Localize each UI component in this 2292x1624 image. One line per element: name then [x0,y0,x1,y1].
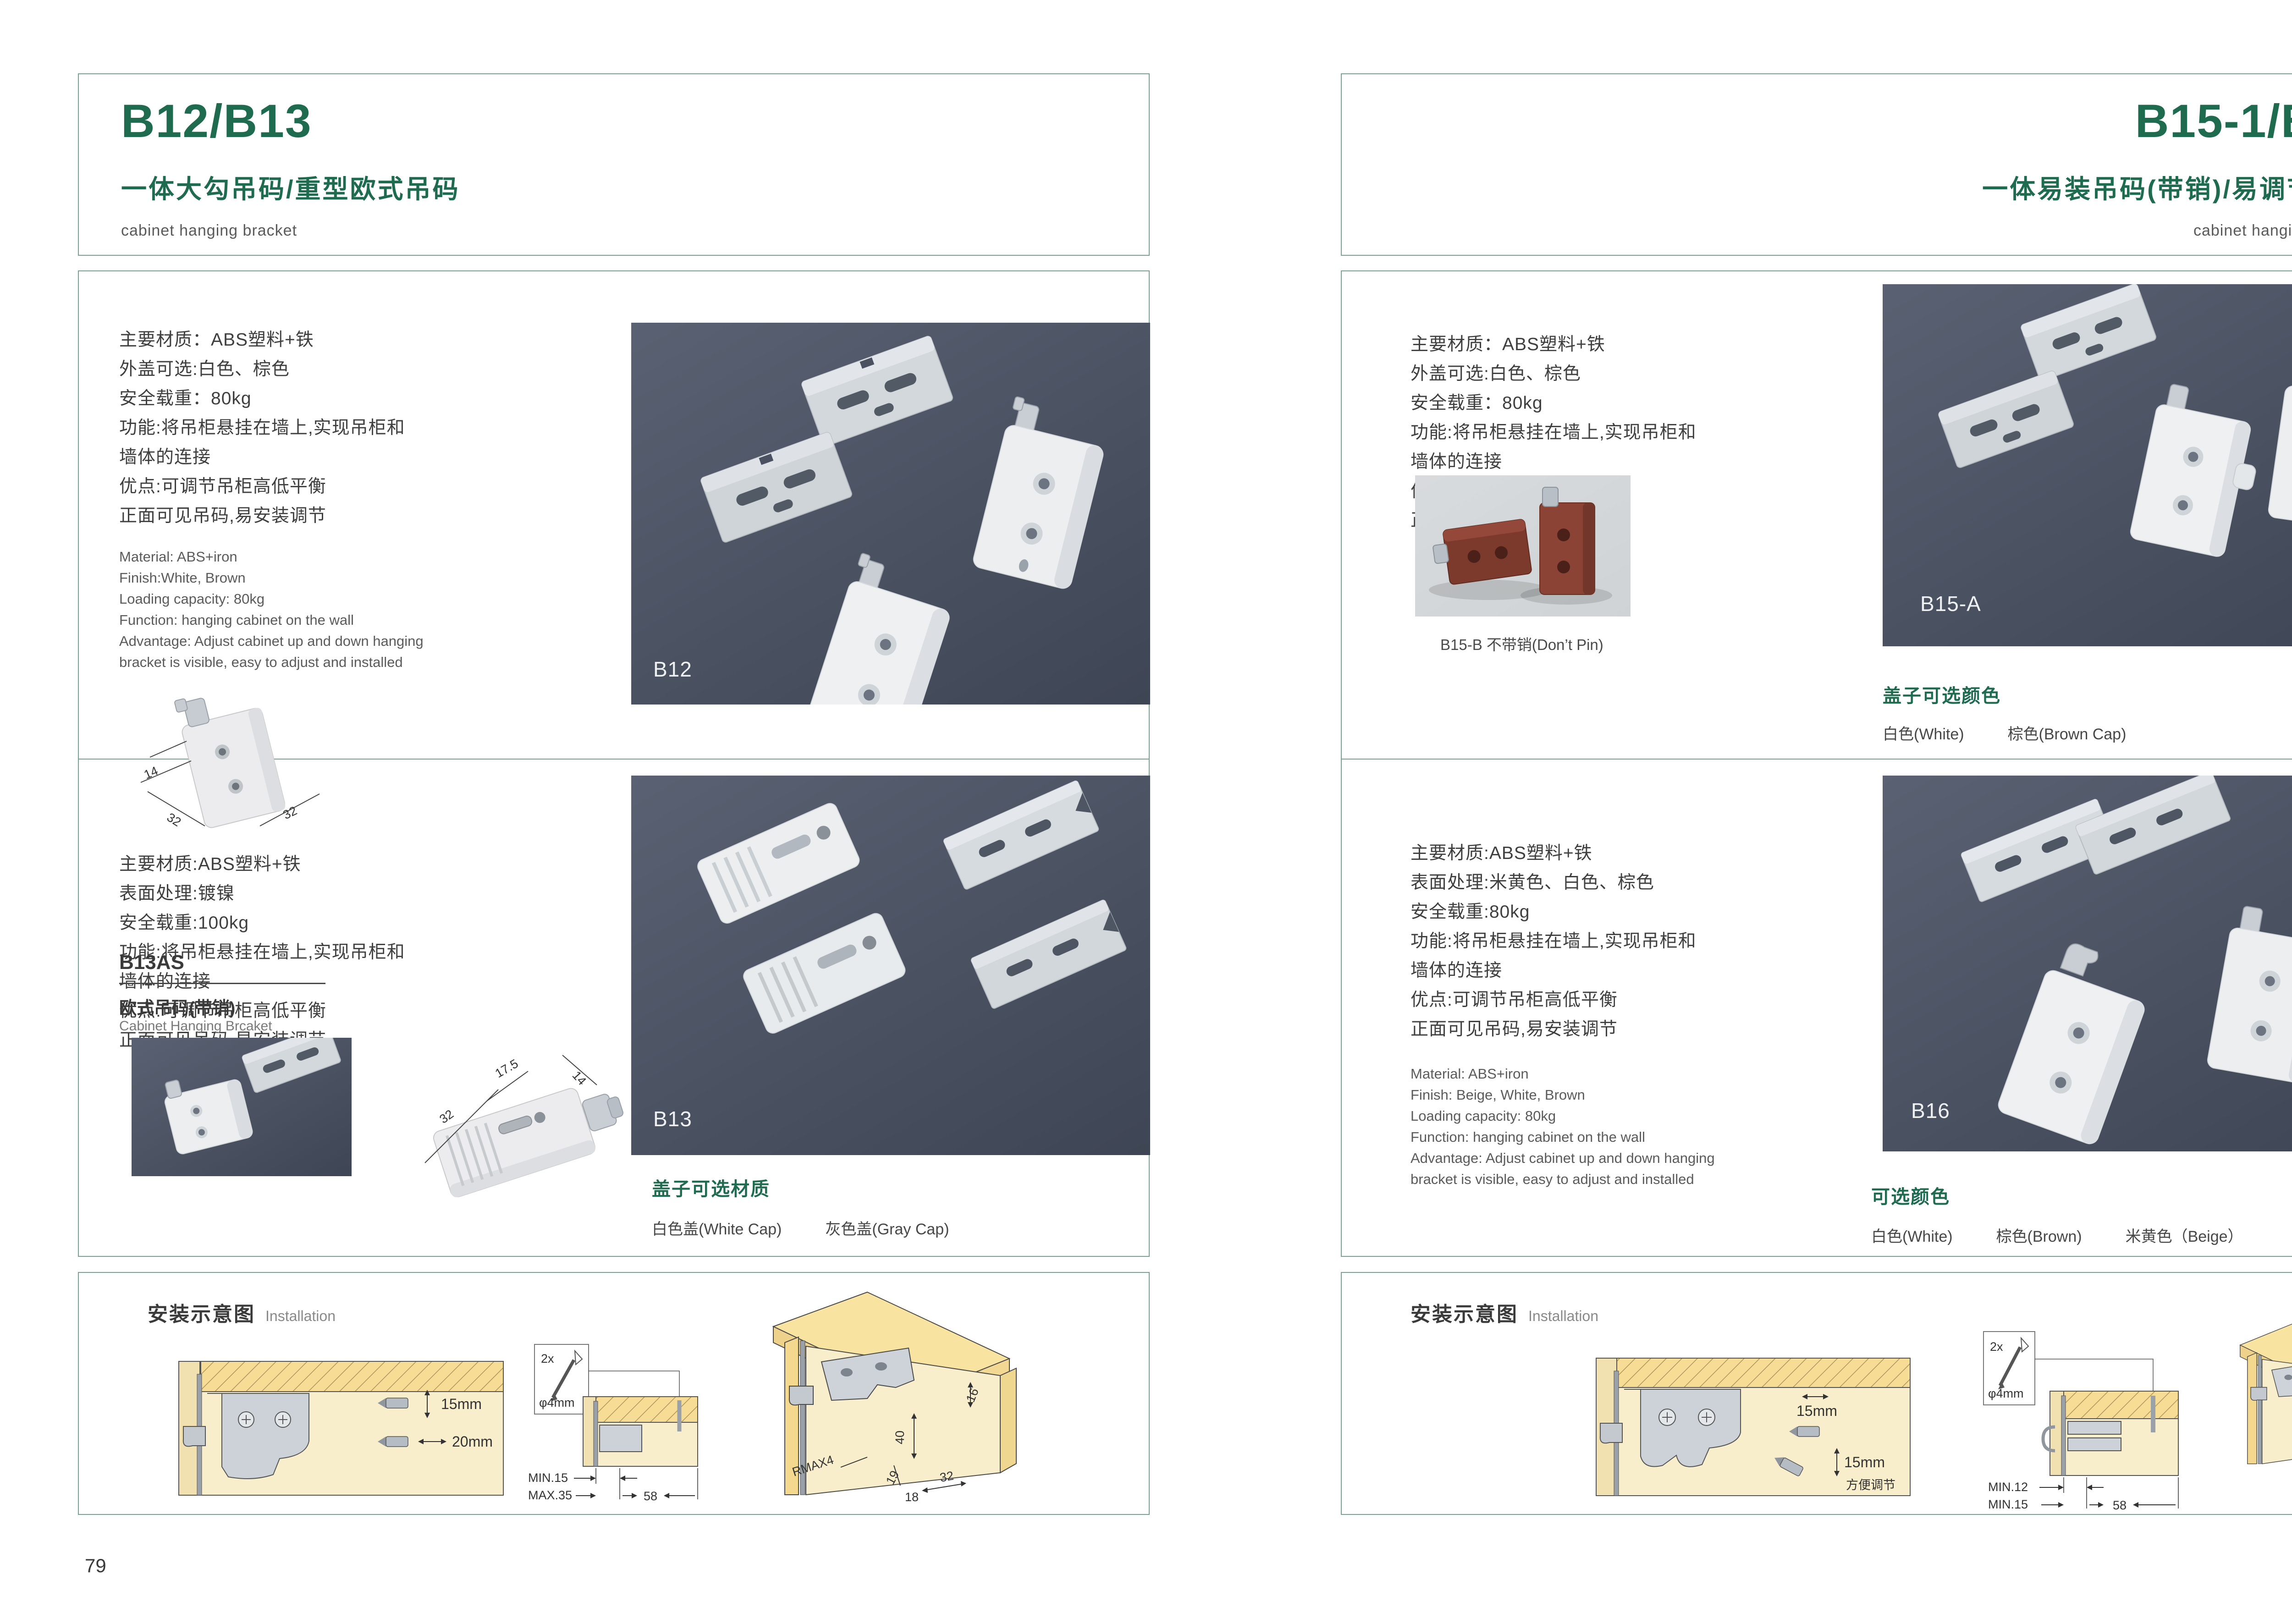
installation-title-en: Installation [265,1308,336,1324]
hanging-bracket [1996,937,2158,1146]
spec-line: 功能:将吊柜悬挂在墙上,实现吊柜和 [1410,927,1697,956]
photo-label-b12: B12 [653,657,692,682]
right-install-diagram-1: 15mm 15mm 方便调节 [1589,1342,1938,1502]
b13as-model-name-cn: 欧式吊码(带销) [119,994,235,1019]
catalog-spread: B12/B13 一体大勾吊码/重型欧式吊码 cabinet hanging br… [0,0,2292,1624]
spec-line: Loading capacity: 80kg [119,589,424,610]
spec-line: Finish:White, Brown [119,567,424,589]
b16-specs-cn: 主要材质:ABS塑料+铁 表面处理:米黄色、白色、棕色 安全载重:80kg 功能… [1410,839,1697,1044]
left-install-diagram-3: 16 40 RMAX4 19 18 32 [716,1278,1037,1510]
hanging-bracket [2129,382,2270,561]
photo-label-b16: B16 [1911,1098,1950,1123]
dim-label: 58 [2113,1498,2127,1510]
installation-title-en: Installation [1528,1308,1598,1324]
cap-option: 白色盖(White Cap) [652,1221,782,1238]
dim-label: 14 [142,764,160,782]
wall-plate [700,431,853,543]
spec-line: Function: hanging cabinet on the wall [1410,1127,1715,1148]
caps-color-title: 盖子可选颜色 [1883,680,2001,708]
wall-rail [970,899,1127,1009]
spec-line: Material: ABS+iron [119,546,424,567]
dim-label: 17.5 [493,1057,521,1080]
spec-line: Finish: Beige, White, Brown [1410,1085,1715,1106]
right-section-divider [1342,759,2292,760]
dim-label: 18 [905,1490,919,1504]
spec-line: 功能:将吊柜悬挂在墙上,实现吊柜和 [119,413,405,443]
right-page-subtitle: 一体易装吊码(带销)/易调节吊码 [1982,169,2292,206]
wall-plate [801,335,953,447]
cap-option: 白色(White) [1883,726,1964,743]
model-underline [119,983,325,984]
spec-line: 安全载重:80kg [1410,897,1697,927]
dim-label: MAX.35 [528,1488,572,1502]
left-page-subtitle: 一体大勾吊码/重型欧式吊码 [121,169,460,206]
brown-bracket [1540,487,1595,595]
spec-line: bracket is visible, easy to adjust and i… [1410,1169,1715,1190]
spec-line: 墙体的连接 [1410,956,1697,985]
spec-line: 主要材质:ABS塑料+铁 [1410,839,1697,868]
left-header-box: B12/B13 一体大勾吊码/重型欧式吊码 cabinet hanging br… [78,73,1150,256]
color-options-title: 可选颜色 [1871,1181,1950,1209]
screw-diameter-label: φ4mm [539,1396,575,1409]
dim-label: 20mm [452,1433,493,1450]
b13-photo: B13 [631,776,1150,1155]
spec-line: 安全载重：80kg [119,384,405,413]
spec-line: 外盖可选:白色、棕色 [1410,359,1697,389]
spec-line: 优点:可调节吊柜高低平衡 [1410,985,1697,1015]
spec-line: Advantage: Adjust cabinet up and down ha… [119,631,424,652]
spec-line: 墙体的连接 [119,443,405,472]
dim-label: 58 [644,1489,657,1503]
right-install-diagram-3: 19 32 [2204,1278,2292,1510]
page-number-left: 79 [85,1555,106,1577]
spec-line: 主要材质：ABS塑料+铁 [119,325,405,355]
b12-specs-en: Material: ABS+iron Finish:White, Brown L… [119,546,424,673]
b15b-caption: B15-B 不带销(Don’t Pin) [1440,633,1603,655]
dim-label: 40 [893,1431,907,1444]
hanging-bracket [2206,904,2292,1084]
spec-line: Loading capacity: 80kg [1410,1106,1715,1127]
b12-specs-cn: 主要材质：ABS塑料+铁 外盖可选:白色、棕色 安全载重：80kg 功能:将吊柜… [119,325,405,531]
right-page-title: B15-1/B16 [2135,94,2292,148]
photo-label-b15a: B15-A [1920,591,1981,616]
b16-specs-en: Material: ABS+iron Finish: Beige, White,… [1410,1063,1715,1190]
b13as-model-code: B13AS [119,951,184,974]
spec-line: Function: hanging cabinet on the wall [119,610,424,631]
b15a-photo: B15-A [1883,284,2292,646]
spec-line: 主要材质:ABS塑料+铁 [119,850,405,879]
dim-label: 15mm [1796,1403,1837,1419]
right-header-box: B15-1/B16 一体易装吊码(带销)/易调节吊码 cabinet hangi… [1341,73,2292,256]
photo-label-b13: B13 [653,1107,692,1131]
right-installation-box: 安装示意图Installation 15mm [1341,1272,2292,1515]
spec-line: 正面可见吊码,易安装调节 [119,501,405,531]
spec-line: 安全载重:100kg [119,908,405,938]
brown-bracket [1431,519,1532,587]
dim-label: MIN.15 [1988,1497,2028,1510]
spec-line: 功能:将吊柜悬挂在墙上,实现吊柜和 [1410,418,1697,447]
b16-photo: B16 [1883,776,2292,1151]
dim-label: 32 [939,1469,955,1485]
spec-line: Material: ABS+iron [1410,1063,1715,1085]
spec-line: 表面处理:镀镍 [119,879,405,908]
wall-rail [2075,776,2231,875]
left-page-category: cabinet hanging bracket [121,222,297,240]
left-page-title: B12/B13 [121,94,312,148]
screw-count-label: 2x [541,1352,554,1365]
color-option: 米黄色（Beige） [2126,1228,2243,1245]
wall-rail [242,1038,341,1093]
hanging-bracket [972,396,1112,590]
spec-line: 安全载重：80kg [1410,389,1697,418]
spec-line: 正面可见吊码,易安装调节 [1410,1015,1697,1044]
spec-line: 表面处理:米黄色、白色、棕色 [1410,868,1697,897]
b13as-photo [132,1038,352,1176]
cap-option: 灰色盖(Gray Cap) [825,1221,949,1238]
cap-option: 棕色(Brown Cap) [2008,726,2127,743]
hanging-bracket [2268,363,2292,531]
wall-plate [2020,284,2157,381]
caps-material-title: 盖子可选材质 [652,1173,770,1201]
dim-label: 32 [165,810,183,829]
b13as-model-name-en: Cabinet Hanging Brcaket [119,1018,272,1034]
left-main-box: 主要材质：ABS塑料+铁 外盖可选:白色、棕色 安全载重：80kg 功能:将吊柜… [78,270,1150,1257]
installation-title-cn: 安装示意图 [1410,1303,1518,1326]
left-install-diagram-2: 2x φ4mm MIN.15 MAX.35 58 [528,1342,702,1511]
wall-plate [1938,370,2074,469]
left-install-diagram-1: 15mm 20mm [171,1358,514,1500]
caps-material-options: 白色盖(White Cap)灰色盖(Gray Cap) [652,1217,993,1239]
dim-label: 14 [570,1068,589,1088]
screw-diameter-label: φ4mm [1988,1387,2024,1400]
spec-line: bracket is visible, easy to adjust and i… [119,652,424,673]
right-page-category: cabinet hanging bracket [2193,222,2292,240]
dim-label: MIN.12 [1988,1480,2028,1494]
installation-title-cn: 安装示意图 [148,1303,255,1326]
color-option: 棕色(Brown) [1996,1228,2082,1245]
dim-label: 32 [437,1107,456,1126]
spec-line: 外盖可选:白色、棕色 [119,355,405,384]
dim-label: 15mm [1844,1454,1885,1470]
spec-line: Advantage: Adjust cabinet up and down ha… [1410,1148,1715,1169]
color-options: 白色(White)棕色(Brown)米黄色（Beige） [1871,1224,2287,1246]
right-main-box: 主要材质：ABS塑料+铁 外盖可选:白色、棕色 安全载重：80kg 功能:将吊柜… [1341,270,2292,1257]
hanging-bracket [804,552,960,705]
color-option: 白色(White) [1871,1228,1953,1245]
b12-photo: B12 [631,323,1150,705]
spec-line: 墙体的连接 [1410,447,1697,477]
dim-label: MIN.15 [528,1471,568,1485]
diagram-note: 方便调节 [1846,1478,1895,1492]
wall-rail [943,780,1099,890]
dim-label: 15mm [441,1396,482,1412]
hanging-bracket [160,1065,254,1155]
bracket-housing [695,801,861,925]
spec-line: 主要材质：ABS塑料+铁 [1410,330,1697,359]
spec-line: 优点:可调节吊柜高低平衡 [119,472,405,501]
screw-count-label: 2x [1990,1340,2003,1354]
left-installation-box: 安装示意图Installation 15mm [78,1272,1150,1515]
right-install-diagram-2: 2x φ4mm MIN.12 MIN.15 58 [1970,1327,2185,1510]
bracket-housing [741,911,907,1035]
b12-dimension-sketch: 14 32 32 [122,688,338,840]
b13-dimension-sketch: 32 17.5 14 [381,1030,647,1222]
b15b-photo [1415,475,1631,617]
caps-color-options: 白色(White)棕色(Brown Cap) [1883,721,2170,744]
